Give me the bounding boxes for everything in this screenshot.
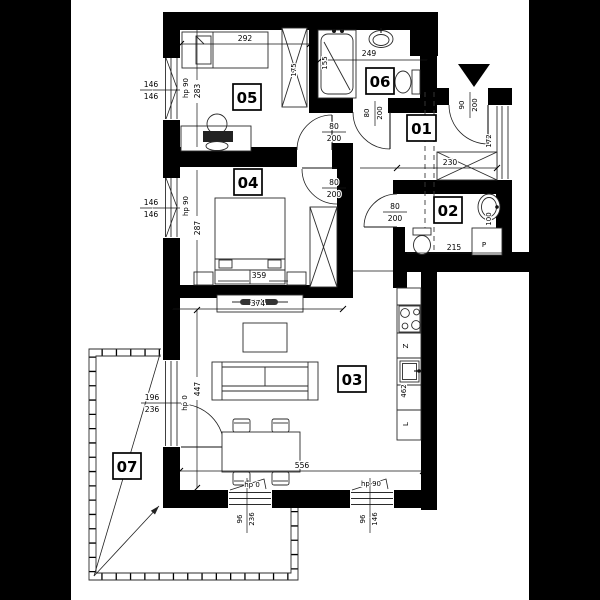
dim-balcony-hp: hp 0 (181, 395, 189, 411)
dim-room03-height: 447 (193, 382, 202, 397)
coffee-table (243, 323, 287, 352)
dim-wardrobe05: 175 (290, 63, 298, 76)
floor-plan: 292 283 175 146 146 hp 90 155 249 80 200… (0, 0, 600, 600)
dim-door05-num: 80 (329, 122, 339, 131)
dim-entry-num: 90 (458, 101, 466, 110)
dim-door02-den: 200 (388, 214, 403, 223)
wall-kitchen-stub (393, 252, 407, 288)
wall-top (163, 12, 430, 30)
wall-bottom-a (163, 490, 228, 508)
room-badge-04: 04 (234, 169, 262, 195)
wall-room03-right (421, 272, 437, 510)
room-number-03: 03 (342, 371, 363, 389)
wall-bath02-bottom (393, 252, 529, 272)
dim-door05-den: 200 (327, 134, 342, 143)
sink-06 (369, 31, 393, 48)
bed-pillow (196, 36, 211, 64)
toilet-06-bowl (395, 71, 411, 93)
dim-win05-num: 146 (144, 80, 159, 89)
room-badge-06: 06 (366, 68, 394, 94)
right-black-band (529, 0, 600, 600)
dim-room03-width: 556 (295, 461, 310, 470)
wall-bath02-top (393, 180, 512, 194)
dim-win05-den: 146 (144, 92, 159, 101)
bed-single (182, 32, 268, 68)
dim-hall-width: 230 (443, 158, 458, 167)
dim-win2-num: 96 (359, 514, 367, 523)
room-number-04: 04 (238, 174, 259, 192)
tub-knob-icon (340, 29, 344, 33)
dim-bed04: 359 (252, 271, 267, 280)
left-black-band (0, 0, 71, 600)
dim-tub: 155 (321, 56, 329, 69)
bed-pillow-right (268, 260, 281, 268)
floor-plan-screenshot: 292 283 175 146 146 hp 90 155 249 80 200… (0, 0, 600, 600)
symbol-washer: P (482, 241, 486, 249)
wall-bottom-c (394, 490, 437, 508)
wall-left-a (163, 12, 180, 58)
wall-bath06-bottom-left (309, 98, 353, 113)
dim-room04-width: 374 (251, 299, 266, 308)
dim-room04-height: 287 (193, 221, 202, 236)
room-number-05: 05 (237, 89, 258, 107)
wall-bath06-right (420, 30, 437, 113)
dim-hall-window: 172 (485, 134, 493, 147)
nightstand-right (287, 272, 306, 285)
dim-win1-num: 96 (236, 514, 244, 523)
dim-bath06-width: 249 (362, 49, 377, 58)
dim-balcony-den: 236 (145, 405, 160, 414)
dim-room05-width: 292 (238, 34, 253, 43)
dim-entry-den: 200 (471, 98, 479, 111)
dim-win04-hp: hp 90 (182, 196, 190, 216)
toilet-06-tank (412, 70, 420, 94)
room-number-02: 02 (438, 202, 459, 220)
dim-door06-num: 80 (363, 109, 371, 118)
dim-win2-den: 146 (371, 512, 379, 526)
room-badge-03: 03 (338, 366, 366, 392)
washing-machine (472, 228, 502, 255)
dim-door02-num: 80 (390, 202, 400, 211)
dim-door06-den: 200 (376, 106, 384, 119)
wall-entry-right-corner (488, 88, 512, 105)
toilet-02-tank (413, 228, 431, 235)
wall-door-post (332, 143, 353, 169)
dim-win04-den: 146 (144, 210, 159, 219)
symbol-fridge: L (402, 422, 410, 426)
dim-win1-hp: hp 0 (244, 481, 260, 489)
dim-win04-num: 146 (144, 198, 159, 207)
room-number-07: 07 (117, 458, 138, 476)
dim-kitchen-length: 462 (400, 384, 408, 397)
dim-balcony-num: 196 (145, 393, 160, 402)
dim-win2-hp: hp 90 (361, 480, 381, 488)
toilet-02-bowl (414, 236, 431, 255)
dim-bath02-width: 215 (447, 243, 462, 252)
room-badge-01: 01 (407, 115, 436, 141)
room-badge-07: 07 (113, 453, 141, 479)
sink-02-faucet-icon (495, 205, 499, 209)
symbol-dishwasher: Z (402, 343, 410, 348)
dim-room05-height: 283 (193, 84, 202, 99)
desk-computer (203, 131, 233, 142)
room-badge-02: 02 (434, 197, 462, 223)
dim-sink02: 100 (485, 212, 493, 225)
dining-table (222, 432, 300, 472)
room-number-06: 06 (370, 73, 391, 91)
dim-door04-den: 200 (327, 190, 342, 199)
wall-bottom-b (272, 490, 350, 508)
bed-pillow-left (219, 260, 232, 268)
dim-win1-den: 236 (248, 512, 256, 526)
tub-faucet-icon (332, 29, 336, 33)
dim-door04-num: 80 (329, 178, 339, 187)
room-number-01: 01 (411, 120, 432, 138)
wall-room04-right (337, 167, 353, 298)
dim-win05-hp: hp 90 (182, 78, 190, 98)
wall-entry-left-stub (437, 88, 449, 105)
wall-left-c (163, 238, 180, 360)
room-badge-05: 05 (233, 84, 261, 110)
